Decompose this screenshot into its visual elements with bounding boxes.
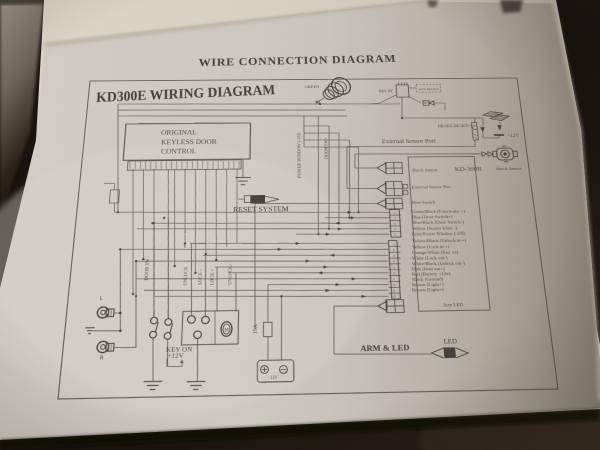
svg-text:Brown (Light+): Brown (Light+) xyxy=(412,287,445,293)
svg-text:5: 5 xyxy=(393,265,396,269)
svg-text:6: 6 xyxy=(393,271,396,275)
svg-text:ARM & LED: ARM & LED xyxy=(360,343,410,353)
svg-text:UNLOCK+: UNLOCK+ xyxy=(227,262,233,285)
svg-text:15A: 15A xyxy=(253,324,259,334)
svg-text:DOOR SW -: DOOR SW - xyxy=(143,255,150,280)
svg-text:+12V: +12V xyxy=(507,134,520,139)
svg-text:DOOR SW+: DOOR SW+ xyxy=(323,137,329,159)
svg-text:2: 2 xyxy=(393,248,396,252)
svg-text:GREEN: GREEN xyxy=(305,84,320,89)
svg-text:Shock Sensor: Shock Sensor xyxy=(496,166,523,171)
svg-text:CONTROL: CONTROL xyxy=(161,148,197,155)
svg-text:10: 10 xyxy=(392,294,396,299)
svg-text:Yellow/Black (Unlock in +): Yellow/Black (Unlock in +) xyxy=(412,237,467,243)
svg-text:LOCK +: LOCK + xyxy=(209,268,215,285)
svg-text:KEYLESS DOOR: KEYLESS DOOR xyxy=(161,139,217,146)
svg-text:RESET SYSTEM: RESET SYSTEM xyxy=(233,206,289,214)
svg-text:WIRE CONNECTION DIAGRAM: WIRE CONNECTION DIAGRAM xyxy=(199,52,397,69)
svg-text:L: L xyxy=(100,297,104,303)
svg-text:12V: 12V xyxy=(270,375,278,380)
svg-text:LOCK -: LOCK - xyxy=(196,269,202,285)
svg-text:BRAKE RIGHT(-): BRAKE RIGHT(-) xyxy=(438,123,473,128)
svg-text:POWER WINDOW (-25I): POWER WINDOW (-25I) xyxy=(296,132,302,178)
svg-text:4: 4 xyxy=(394,227,397,231)
svg-text:4: 4 xyxy=(393,259,396,263)
svg-text:R: R xyxy=(99,356,104,362)
svg-text:ORIGINAL: ORIGINAL xyxy=(161,130,197,137)
svg-text:Rear Switch: Rear Switch xyxy=(412,199,437,204)
svg-text:1: 1 xyxy=(394,211,397,215)
svg-text:2: 2 xyxy=(394,216,397,220)
svg-text:3: 3 xyxy=(394,222,397,226)
svg-text:8: 8 xyxy=(393,283,396,288)
svg-text:3: 3 xyxy=(393,254,396,258)
svg-text:LED: LED xyxy=(443,339,457,346)
svg-text:External Sensor Port: External Sensor Port xyxy=(412,184,452,190)
svg-text:KD-300B: KD-300B xyxy=(455,166,482,173)
svg-text:RELAY: RELAY xyxy=(379,88,393,93)
svg-text:Gray/Power Window (-25I): Gray/Power Window (-25I) xyxy=(412,230,466,236)
svg-text:External Sensor Port: External Sensor Port xyxy=(382,139,437,145)
svg-text:M: M xyxy=(224,327,229,333)
svg-text:5: 5 xyxy=(394,233,397,237)
svg-text:7: 7 xyxy=(393,277,396,281)
svg-text:UNLOCK: UNLOCK xyxy=(182,266,189,285)
svg-text:Arm LED: Arm LED xyxy=(443,302,464,308)
svg-text:+12V: +12V xyxy=(167,353,185,361)
svg-text:KD300E WIRING DIAGRAM: KD300E WIRING DIAGRAM xyxy=(96,82,276,106)
svg-text:1: 1 xyxy=(393,242,396,246)
svg-text:Shock Sensor: Shock Sensor xyxy=(412,167,439,172)
svg-text:ANTI RECEIV: ANTI RECEIV xyxy=(418,87,440,91)
svg-text:9: 9 xyxy=(393,288,396,293)
